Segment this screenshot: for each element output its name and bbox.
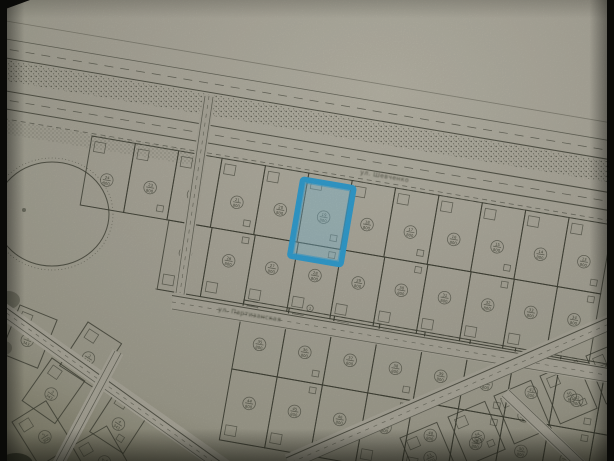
photo-edge-left	[0, 0, 7, 461]
cadastral-plan-svg: 2480023800228002180020800198001880017800…	[0, 0, 614, 461]
photo-grain	[0, 0, 614, 461]
map-photo: 2480023800228002180020800198001880017800…	[0, 0, 614, 461]
photo-edge-right	[607, 0, 614, 461]
